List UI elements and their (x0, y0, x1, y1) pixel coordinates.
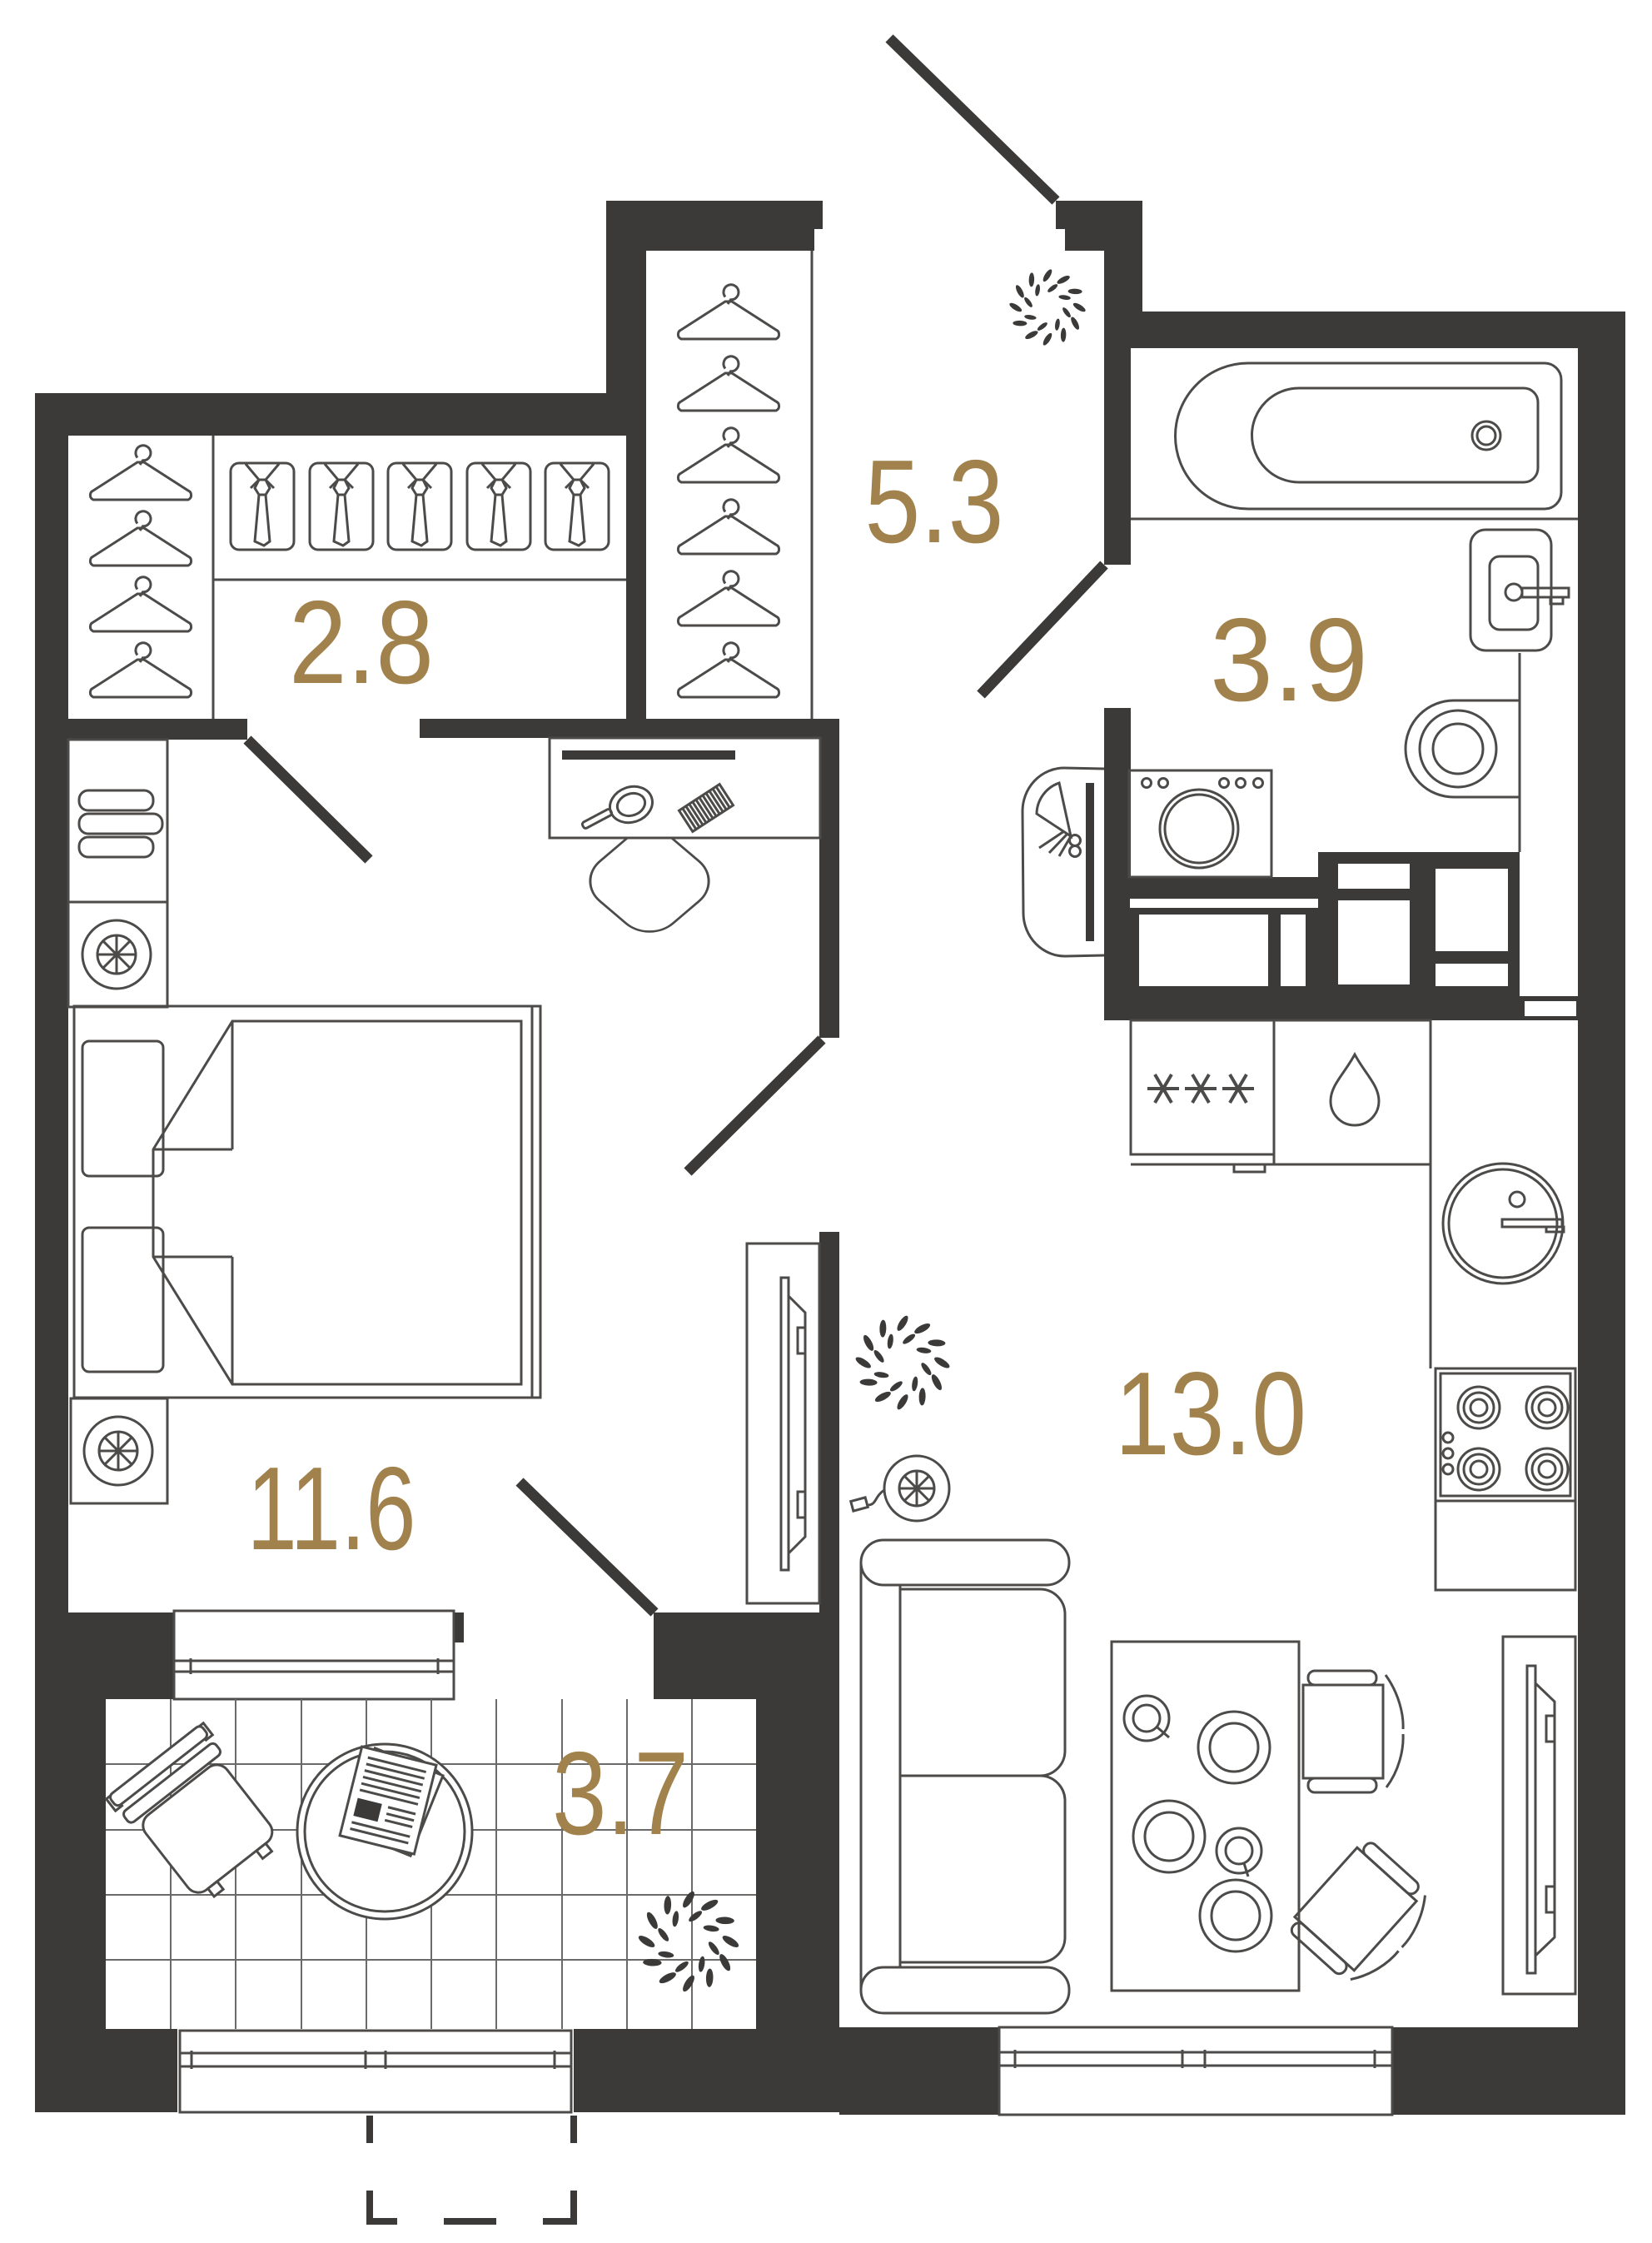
svg-text:13.0: 13.0 (1115, 1348, 1306, 1480)
svg-text:3.7: 3.7 (552, 1727, 689, 1860)
svg-text:5.3: 5.3 (865, 436, 1004, 568)
svg-text:11.6: 11.6 (247, 1443, 416, 1575)
svg-text:3.9: 3.9 (1210, 594, 1368, 726)
svg-text:2.8: 2.8 (289, 576, 434, 709)
